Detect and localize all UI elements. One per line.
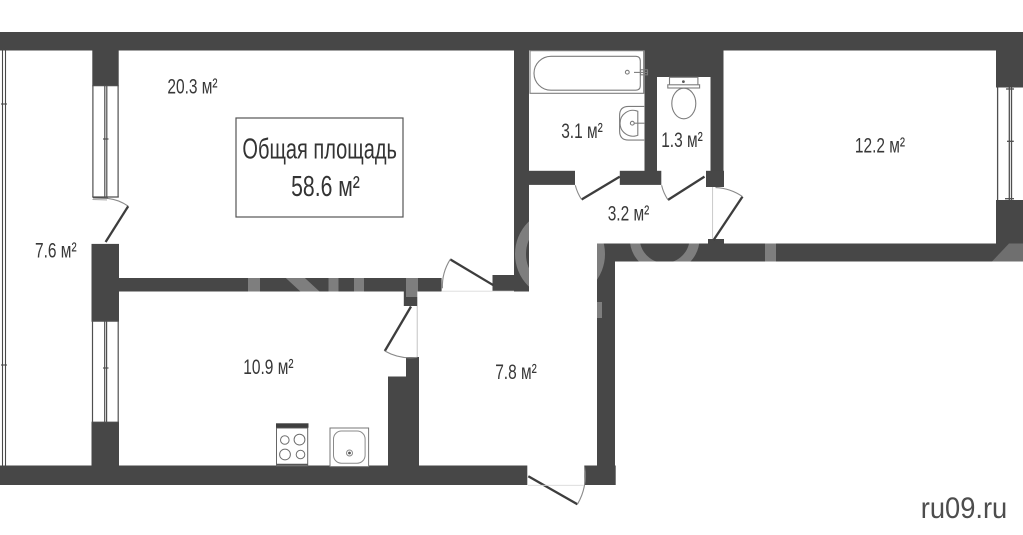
svg-text:3.2 м²: 3.2 м² [608,201,650,225]
svg-text:58.6 м²: 58.6 м² [291,171,360,203]
svg-text:7.6 м²: 7.6 м² [35,238,77,262]
svg-text:10.9 м²: 10.9 м² [243,354,293,378]
svg-text:ru09.ru: ru09.ru [921,492,1007,525]
svg-text:3.1 м²: 3.1 м² [561,118,603,142]
svg-text:20.3 м²: 20.3 м² [167,74,217,98]
svg-text:Общая площадь: Общая площадь [242,133,397,166]
svg-text:7.8 м²: 7.8 м² [495,359,537,383]
svg-text:1.3 м²: 1.3 м² [661,127,703,151]
svg-text:12.2 м²: 12.2 м² [855,133,905,157]
